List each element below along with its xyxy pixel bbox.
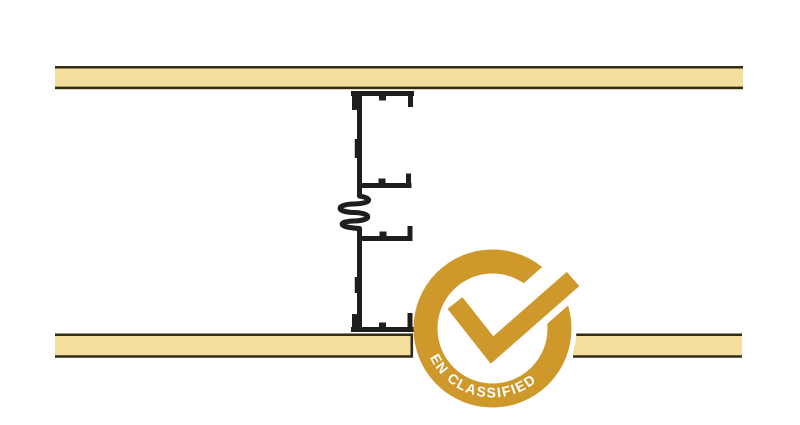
top-board xyxy=(55,66,743,90)
diagram-canvas: EN CLASSIFIED xyxy=(0,0,800,425)
stud-fixing-bumps xyxy=(379,96,387,327)
fixing-bump xyxy=(379,323,386,328)
bottom-board-left xyxy=(55,333,412,357)
fixing-bump xyxy=(379,179,386,184)
wall-section-diagram: EN CLASSIFIED xyxy=(0,0,800,425)
stud-resilient-spring xyxy=(340,186,369,241)
bottom-board-right xyxy=(573,333,742,357)
fixing-bump xyxy=(380,232,387,237)
acoustic-stud-profile xyxy=(340,91,414,332)
fixing-bump xyxy=(379,96,386,101)
plasterboard-layers xyxy=(55,66,743,358)
